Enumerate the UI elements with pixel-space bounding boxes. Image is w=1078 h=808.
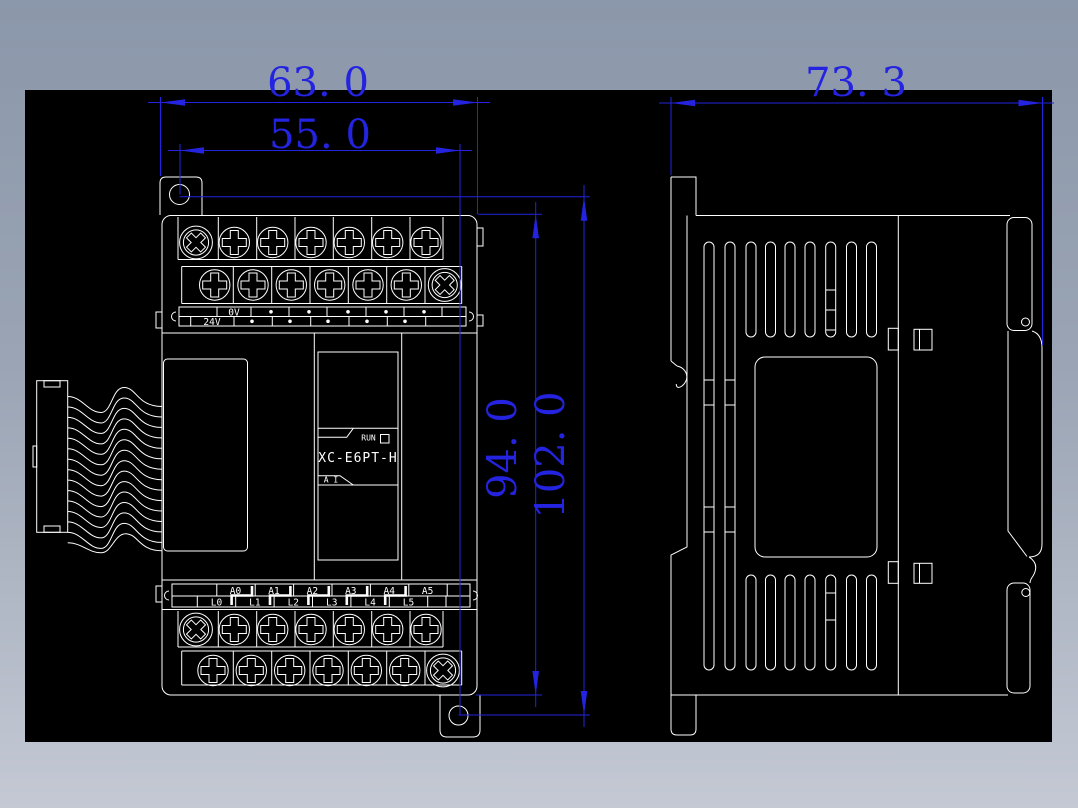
terminal-label: L3 bbox=[326, 598, 337, 609]
terminal-label: L0 bbox=[211, 598, 223, 609]
dimension-front-width-holes: 55. 0 bbox=[269, 112, 371, 158]
ai-label: A I bbox=[324, 476, 339, 485]
terminal-label: L4 bbox=[364, 598, 376, 609]
dimension-front-height-overall: 102. 0 bbox=[528, 391, 574, 518]
terminal-label-0v: 0V bbox=[228, 308, 240, 319]
model-label: XC-E6PT-H bbox=[318, 451, 397, 466]
terminal-label: L1 bbox=[249, 598, 261, 609]
dimension-front-height-body: 94. 0 bbox=[480, 397, 526, 499]
terminal-label: L5 bbox=[403, 598, 414, 609]
cad-drawing-screenshot: 0V 24V RUN XC-E6PT-H A I bbox=[0, 0, 1078, 808]
run-led-label: RUN bbox=[361, 434, 376, 443]
terminal-label-24v: 24V bbox=[203, 317, 220, 328]
dimension-side-depth: 73. 3 bbox=[805, 60, 907, 106]
dimension-front-width-outer: 63. 0 bbox=[267, 60, 369, 106]
terminal-label: L2 bbox=[288, 598, 299, 609]
terminal-label: A5 bbox=[422, 586, 433, 597]
